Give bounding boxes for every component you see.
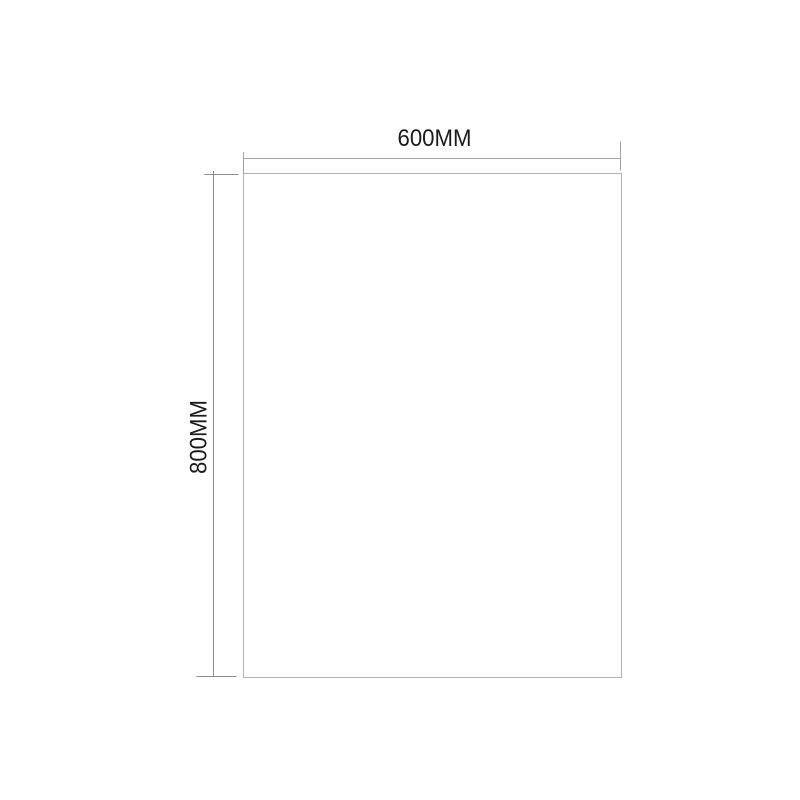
- svg-text:800MM: 800MM: [186, 400, 213, 474]
- svg-text:600MM: 600MM: [398, 125, 472, 152]
